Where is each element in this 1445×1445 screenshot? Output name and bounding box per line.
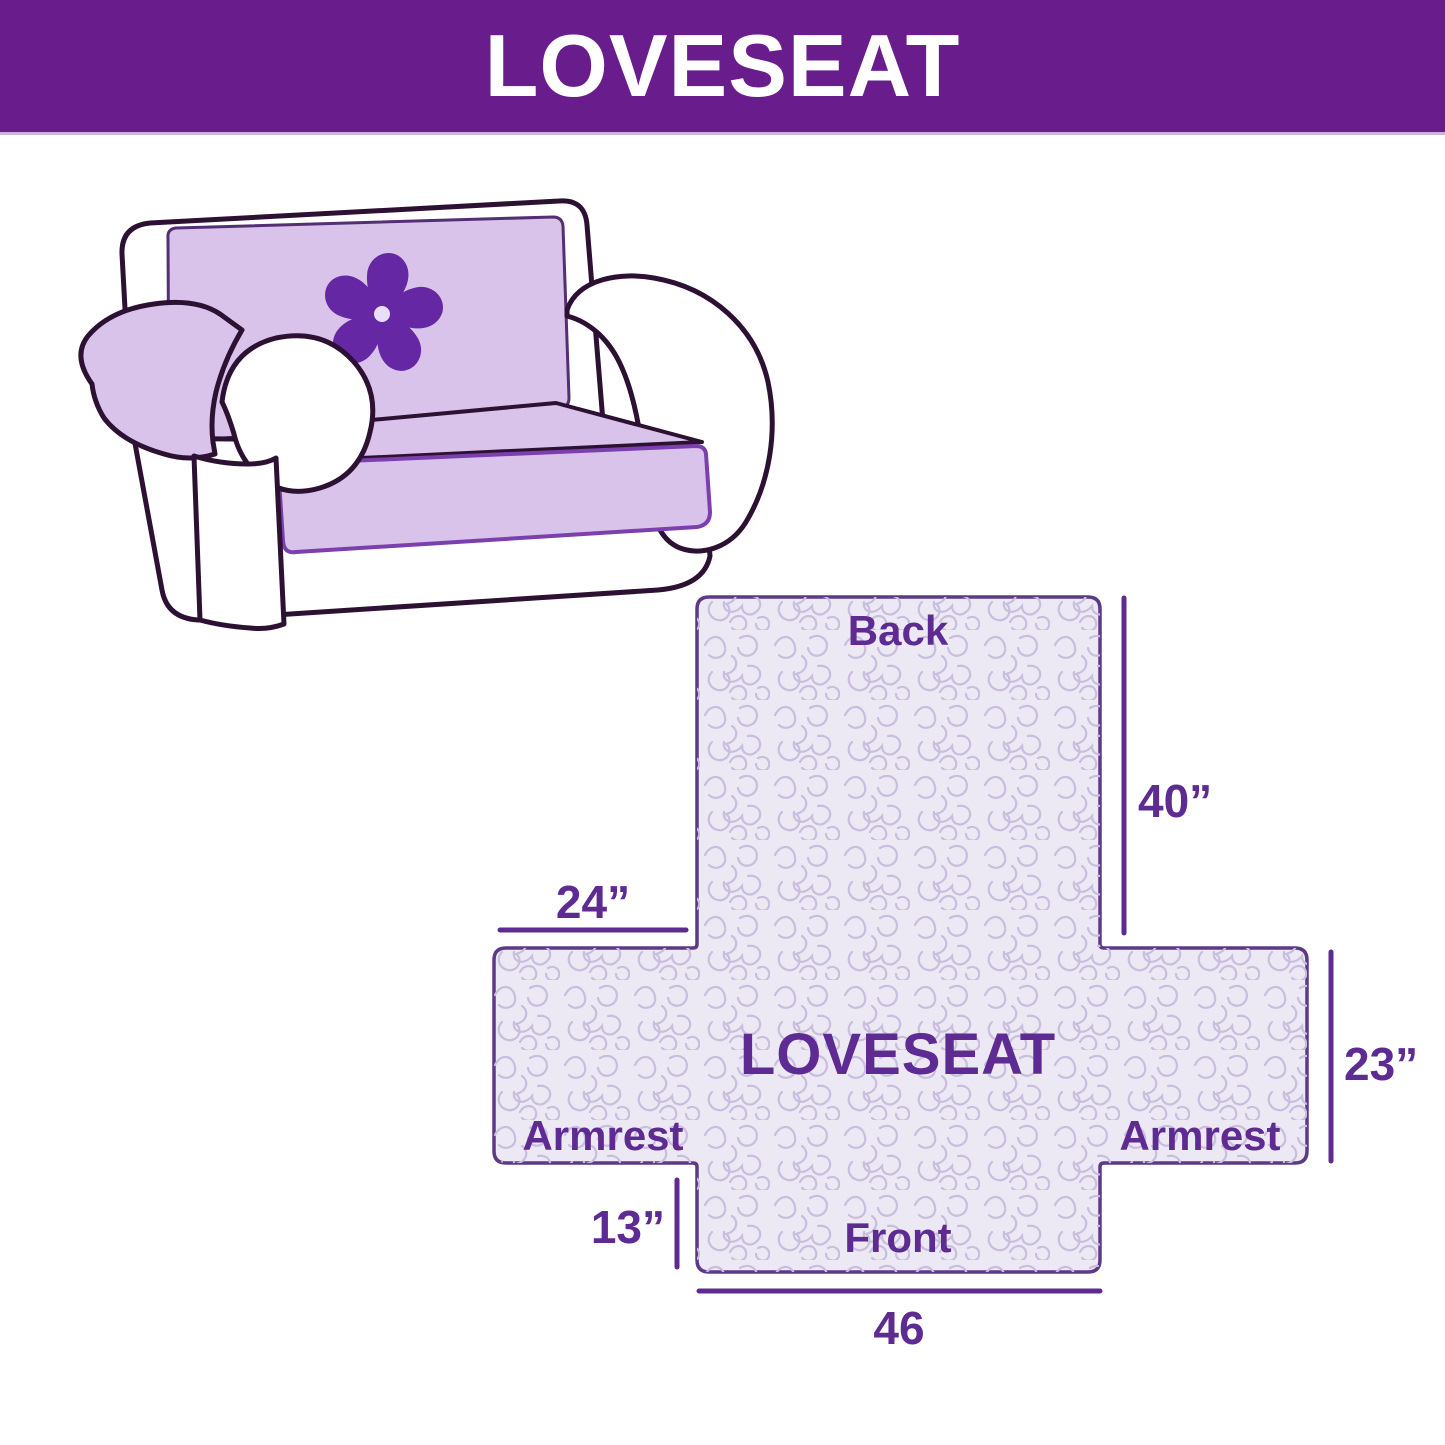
schematic-armrest-right-label: Armrest — [1119, 1112, 1280, 1159]
loveseat-illustration — [81, 201, 772, 629]
schematic-front-label: Front — [844, 1214, 951, 1261]
cover-schematic: Back LOVESEAT Armrest Armrest Front 40” … — [494, 597, 1418, 1354]
schematic-center-label: LOVESEAT — [740, 1022, 1056, 1087]
schematic-armrest-left-label: Armrest — [522, 1112, 683, 1159]
dim-back-height: 40” — [1138, 775, 1212, 827]
infographic-canvas: LOVESEAT — [0, 0, 1445, 1445]
schematic-back-label: Back — [848, 607, 949, 654]
artwork: Back LOVESEAT Armrest Armrest Front 40” … — [0, 0, 1445, 1445]
dim-front-width: 46 — [873, 1302, 924, 1354]
dim-seat-depth: 23” — [1344, 1038, 1418, 1090]
dim-back-width: 24” — [556, 876, 630, 928]
cover-quilt-texture — [494, 597, 1307, 1272]
couch-left-arm-front — [194, 456, 284, 629]
dim-front-height: 13” — [591, 1201, 665, 1253]
